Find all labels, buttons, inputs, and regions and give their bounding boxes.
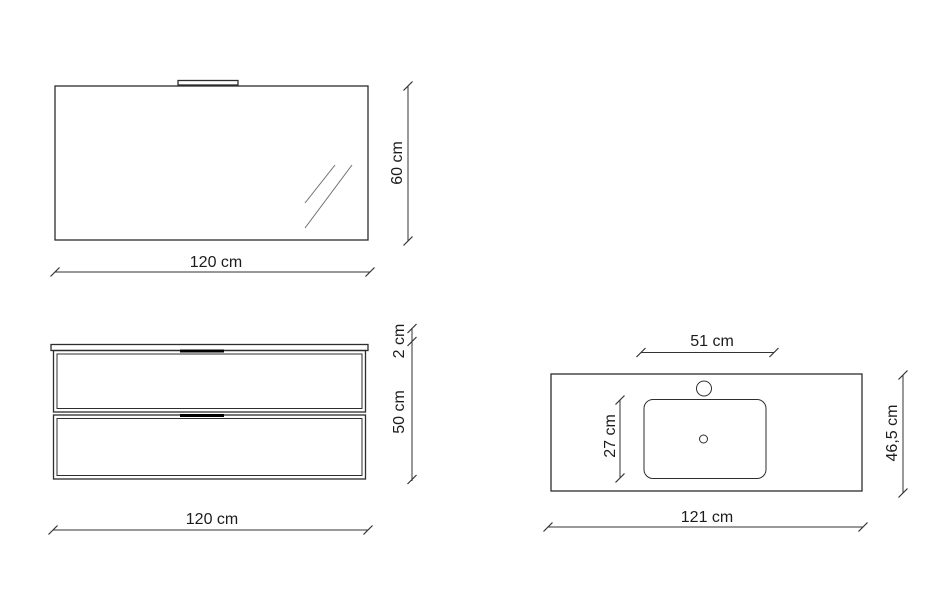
faucet-hole <box>697 381 712 396</box>
mirror-glint-line <box>305 165 335 203</box>
worktop-depth-dimension: 46,5 cm <box>884 371 908 498</box>
basin-depth-dimension: 27 cm <box>602 396 625 483</box>
basin-width-dimension: 51 cm <box>637 333 779 357</box>
drawer-1-front-panel <box>57 354 362 409</box>
worktop-top-view <box>551 374 862 491</box>
basin-width-label: 51 cm <box>690 333 734 350</box>
cabinet-height-dimension: 2 cm 50 cm <box>391 324 417 484</box>
basin-depth-label: 27 cm <box>602 414 619 458</box>
drain-hole <box>700 435 708 443</box>
cabinet-front-view <box>51 345 368 480</box>
mirror-outline <box>55 86 368 240</box>
mirror-front-view <box>55 81 368 241</box>
drawer-1-handle <box>180 350 224 353</box>
cabinet-width-label: 120 cm <box>186 511 238 528</box>
mirror-glint <box>305 165 352 228</box>
bathroom-vanity-technical-drawing: 120 cm 60 cm 2 cm 50 cm <box>0 0 942 616</box>
cabinet-handles <box>180 350 224 418</box>
technical-drawing-canvas: 120 cm 60 cm 2 cm 50 cm <box>0 0 942 616</box>
mirror-width-dimension: 120 cm <box>51 254 375 277</box>
cabinet-width-dimension: 120 cm <box>49 511 373 535</box>
cabinet-body-height-label: 50 cm <box>391 390 408 434</box>
drawer-2-handle <box>180 414 224 417</box>
mirror-light-fixture <box>178 81 238 86</box>
mirror-height-dimension: 60 cm <box>389 82 413 246</box>
mirror-width-label: 120 cm <box>190 254 242 271</box>
worktop-width-dimension: 121 cm <box>544 509 868 532</box>
worktop-depth-label: 46,5 cm <box>884 405 901 462</box>
drawer-1-outline <box>54 351 366 413</box>
mirror-glint-line <box>305 165 352 228</box>
drawer-2-front-panel <box>57 419 362 476</box>
worktop-width-label: 121 cm <box>681 509 733 526</box>
worktop-outline <box>551 374 862 491</box>
drawer-2-outline <box>54 415 366 479</box>
basin-outline <box>644 400 766 479</box>
cabinet-top-thickness-label: 2 cm <box>391 324 408 359</box>
mirror-height-label: 60 cm <box>389 141 406 185</box>
